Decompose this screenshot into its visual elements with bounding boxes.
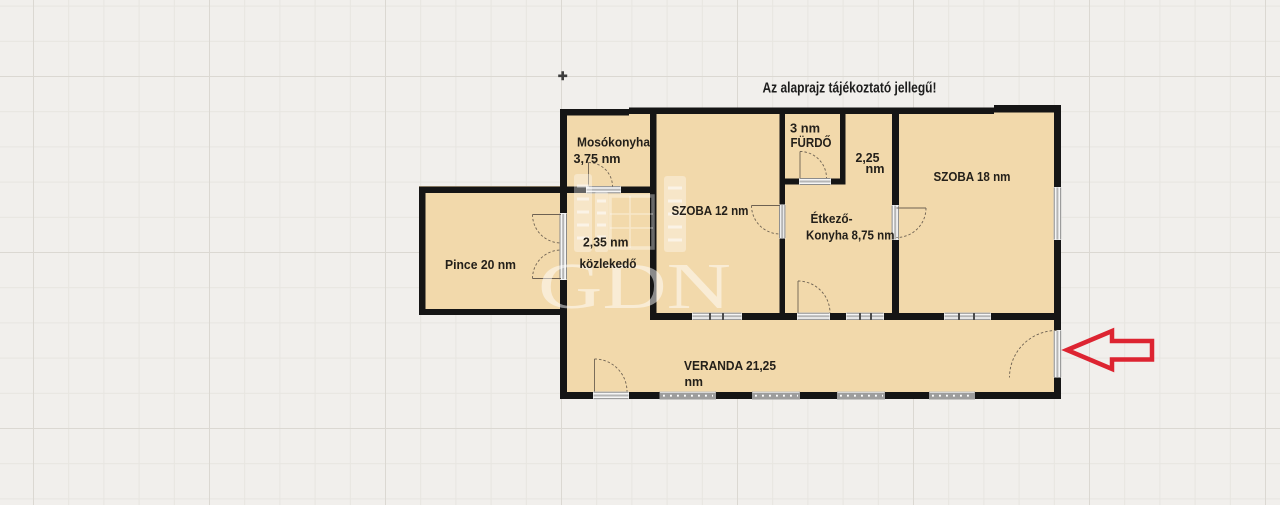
svg-text:FÜRDŐ: FÜRDŐ [791,135,832,150]
svg-text:Az alaprajz tájékoztató jelleg: Az alaprajz tájékoztató jellegű! [763,80,937,97]
svg-text:SZOBA 18 nm: SZOBA 18 nm [934,169,1011,184]
svg-text:nm: nm [685,374,704,389]
svg-text:Mosókonyha: Mosókonyha [577,134,651,149]
svg-text:3,75 nm: 3,75 nm [574,151,621,166]
svg-text:nm: nm [866,161,885,176]
svg-text:2,35 nm: 2,35 nm [583,235,629,250]
svg-text:Étkező-: Étkező- [811,211,853,226]
svg-text:SZOBA 12 nm: SZOBA 12 nm [672,203,749,218]
svg-text:közlekedő: közlekedő [580,256,637,271]
svg-text:VERANDA 21,25: VERANDA 21,25 [684,358,776,373]
svg-text:3 nm: 3 nm [790,120,820,135]
svg-text:Konyha 8,75 nm: Konyha 8,75 nm [806,228,895,243]
svg-text:Pince 20 nm: Pince 20 nm [445,257,516,272]
